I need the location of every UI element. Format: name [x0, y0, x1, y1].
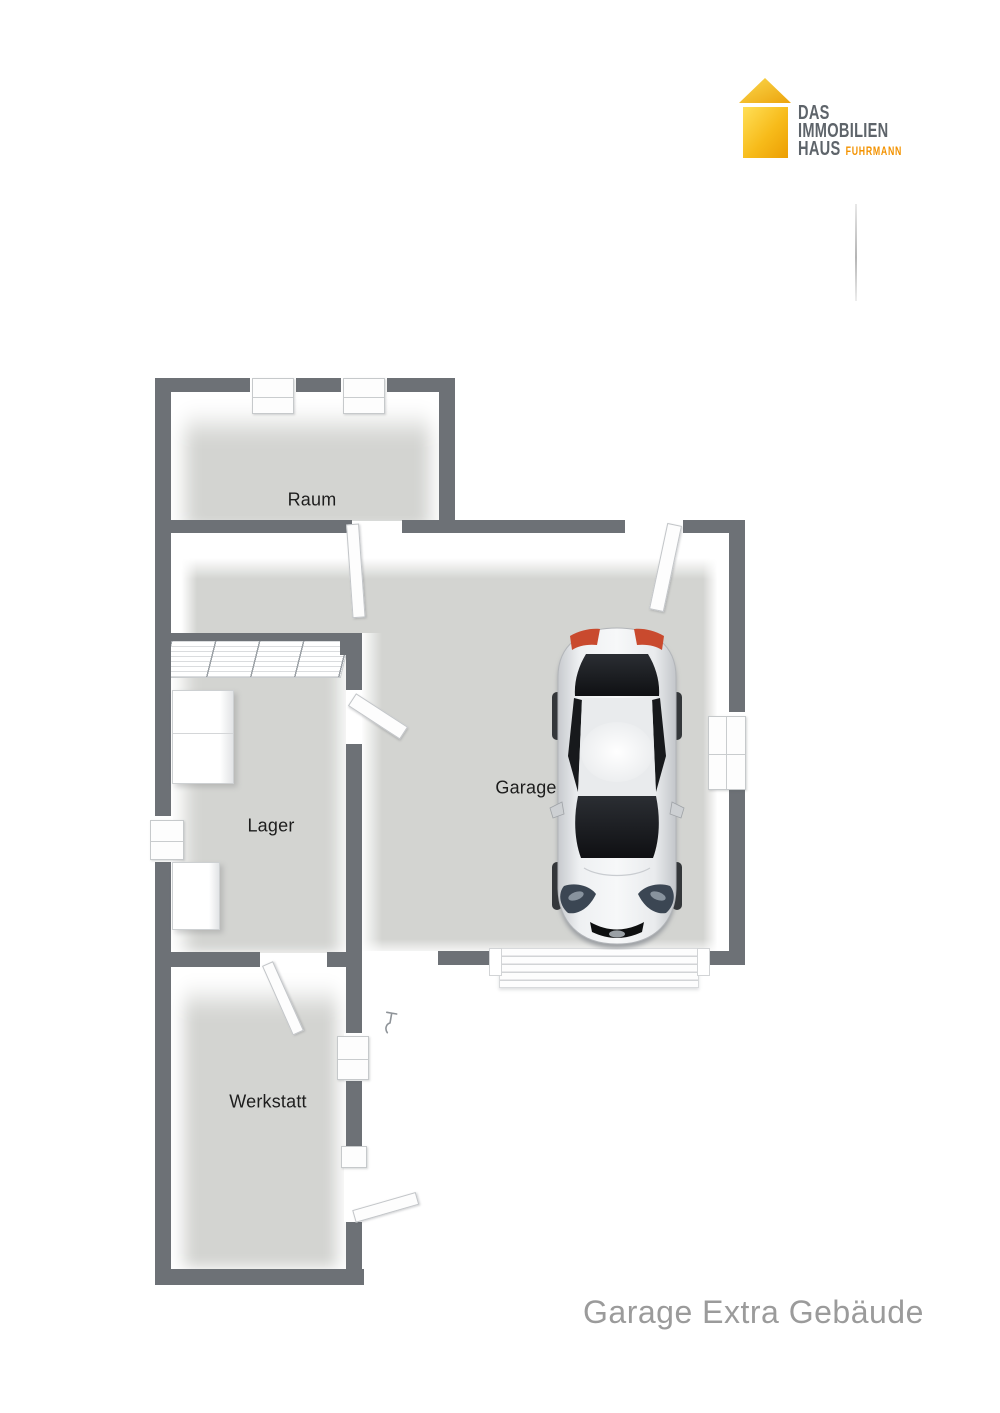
partition-cap	[170, 633, 352, 641]
car-top-view	[546, 624, 688, 950]
garage-door-post-right	[697, 948, 710, 976]
wall-lager-bottom-b	[327, 952, 362, 967]
wall-raum-right	[439, 378, 455, 533]
partition-corner	[340, 633, 352, 655]
cabinet-large	[172, 690, 234, 784]
partition-glazing	[161, 641, 350, 678]
raum-window-2	[343, 378, 385, 414]
werkstatt-floor	[171, 966, 347, 1269]
room-label-werkstatt: Werkstatt	[229, 1092, 306, 1113]
wall-raum-top	[155, 378, 455, 392]
wall-werkstatt-bottom	[155, 1269, 364, 1285]
room-label-raum: Raum	[288, 490, 337, 511]
werkstatt-window	[337, 1036, 369, 1080]
room-label-garage: Garage	[495, 778, 556, 799]
garage-sectional-door	[499, 948, 699, 988]
room-label-lager: Lager	[247, 816, 294, 837]
raum-window-1	[252, 378, 294, 414]
garage-door-post-left	[489, 948, 502, 976]
cabinet-small	[172, 862, 220, 930]
floor-plan: Raum Lager Garage Werkstatt	[0, 0, 1000, 1413]
wall-garage-top-a	[402, 520, 625, 533]
garage-window	[708, 716, 746, 790]
wall-raum-bottom	[155, 520, 352, 533]
plan-caption: Garage Extra Gebäude	[583, 1294, 924, 1331]
lager-window	[150, 820, 184, 860]
wall-lager-bottom-a	[155, 952, 260, 967]
outdoor-tap-icon	[380, 1009, 400, 1037]
werkstatt-small-window	[341, 1146, 367, 1168]
